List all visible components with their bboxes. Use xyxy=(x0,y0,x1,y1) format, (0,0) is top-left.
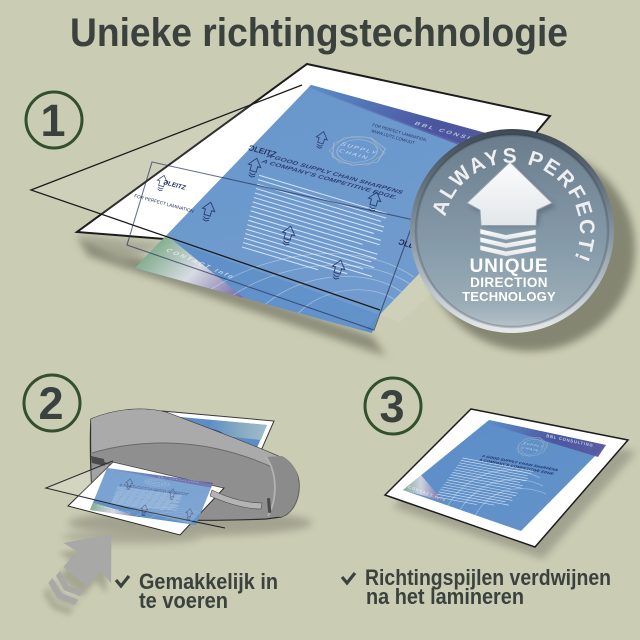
svg-text:1: 1 xyxy=(40,95,65,146)
svg-text:TECHNOLOGY: TECHNOLOGY xyxy=(462,289,556,304)
svg-text:na het lamineren: na het lamineren xyxy=(366,584,524,609)
svg-text:te voeren: te voeren xyxy=(139,588,228,613)
svg-text:3: 3 xyxy=(379,381,404,432)
svg-text:2: 2 xyxy=(38,378,63,429)
svg-text:Unieke richtingstechnologie: Unieke richtingstechnologie xyxy=(70,11,568,55)
svg-text:DIRECTION: DIRECTION xyxy=(470,275,548,290)
svg-text:UNIQUE: UNIQUE xyxy=(470,256,549,277)
